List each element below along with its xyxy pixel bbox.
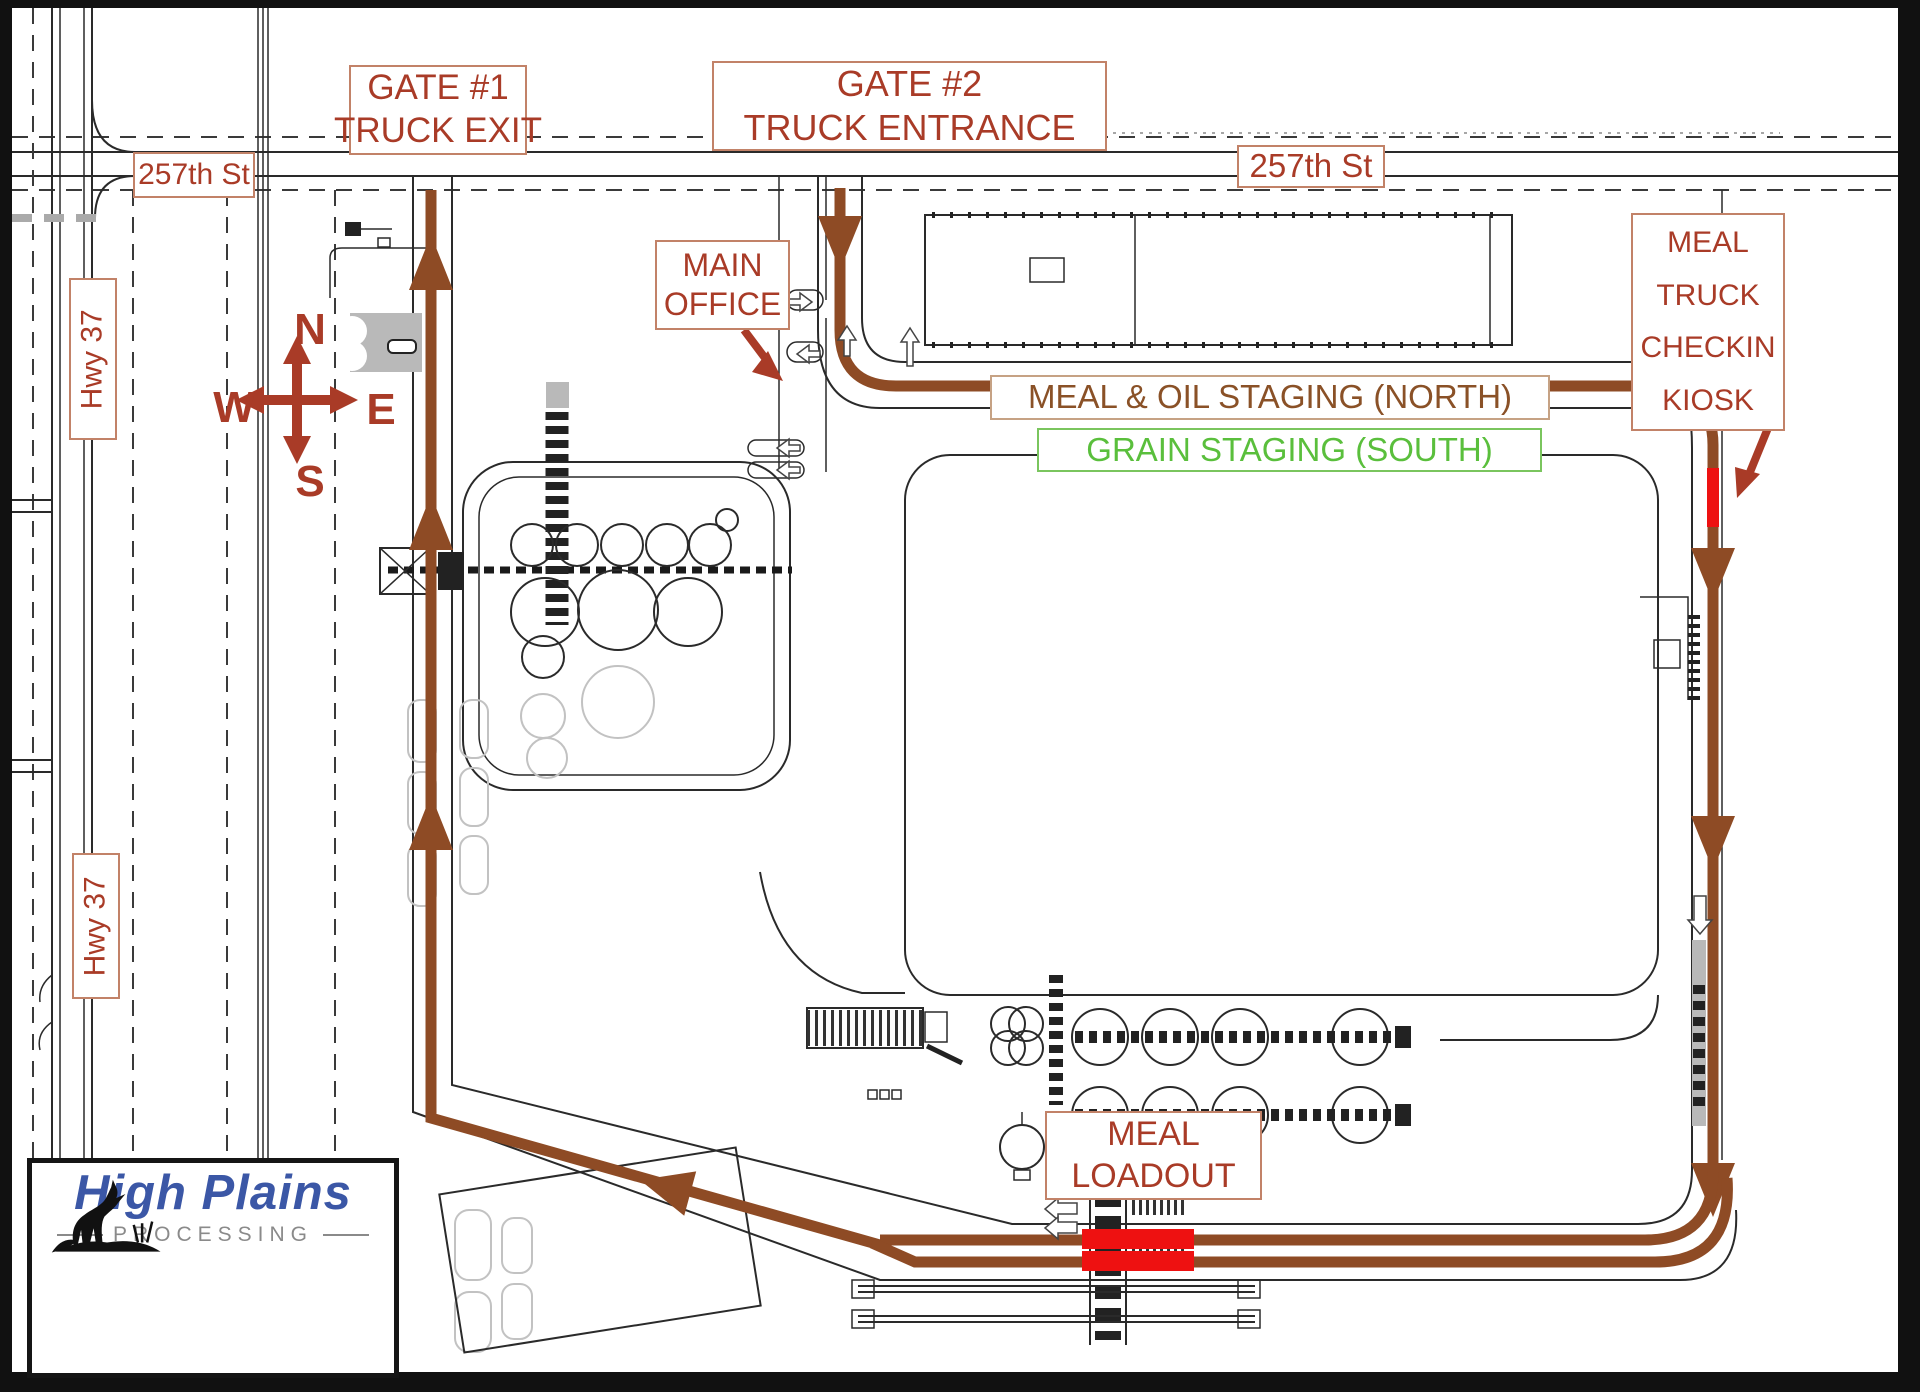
exit-route-arrow-icon [409, 495, 453, 550]
street-label-257th-west: 257th St [133, 152, 255, 198]
exit-route-arrow-icon [634, 1158, 696, 1216]
high-plains-processing-logo: High Plains PROCESSING [27, 1158, 399, 1378]
main-office-label: MAIN OFFICE [655, 240, 790, 330]
hwy-37-label-lower: Hwy 37 [72, 853, 120, 999]
main-office-pointer-arrow-icon [744, 330, 783, 381]
meal-truck-checkin-kiosk-label: MEAL TRUCK CHECKIN KIOSK [1631, 213, 1785, 431]
loadout-stop-highlight [1082, 1229, 1194, 1249]
gate1-line2: TRUCK EXIT [334, 110, 542, 153]
gate2-line2: TRUCK ENTRANCE [743, 106, 1075, 150]
exit-route-arrow-icon [409, 235, 453, 290]
gate2-line1: GATE #2 [837, 62, 982, 106]
compass-south-label: S [288, 460, 332, 504]
compass-north-label: N [288, 308, 332, 352]
compass-east-label: E [359, 388, 403, 432]
entrance-route-arrow-icon [818, 216, 862, 270]
gate1-line1: GATE #1 [367, 67, 508, 110]
grain-staging-south-label: GRAIN STAGING (SOUTH) [1037, 428, 1542, 472]
site-map-canvas: GATE #1 TRUCK EXIT GATE #2 TRUCK ENTRANC… [12, 8, 1898, 1372]
compass-west-label: W [212, 386, 256, 430]
meal-oil-staging-north-label: MEAL & OIL STAGING (NORTH) [990, 375, 1550, 420]
coyote-icon [32, 1163, 182, 1255]
kiosk-pointer-arrow-icon [1735, 428, 1768, 498]
entrance-route-arrow-icon [1691, 548, 1735, 602]
site-map-frame: GATE #1 TRUCK EXIT GATE #2 TRUCK ENTRANC… [0, 0, 1920, 1392]
gate1-truck-exit-label: GATE #1 TRUCK EXIT [349, 65, 527, 155]
street-label-257th-east: 257th St [1237, 145, 1385, 188]
hwy-37-label-upper: Hwy 37 [69, 278, 117, 440]
entrance-route-arrow-icon [1691, 816, 1735, 870]
gate2-truck-entrance-label: GATE #2 TRUCK ENTRANCE [712, 61, 1107, 151]
meal-loadout-label: MEAL LOADOUT [1045, 1111, 1262, 1200]
loadout-stop-highlight [1082, 1251, 1194, 1271]
exit-route-arrow-icon [409, 795, 453, 850]
